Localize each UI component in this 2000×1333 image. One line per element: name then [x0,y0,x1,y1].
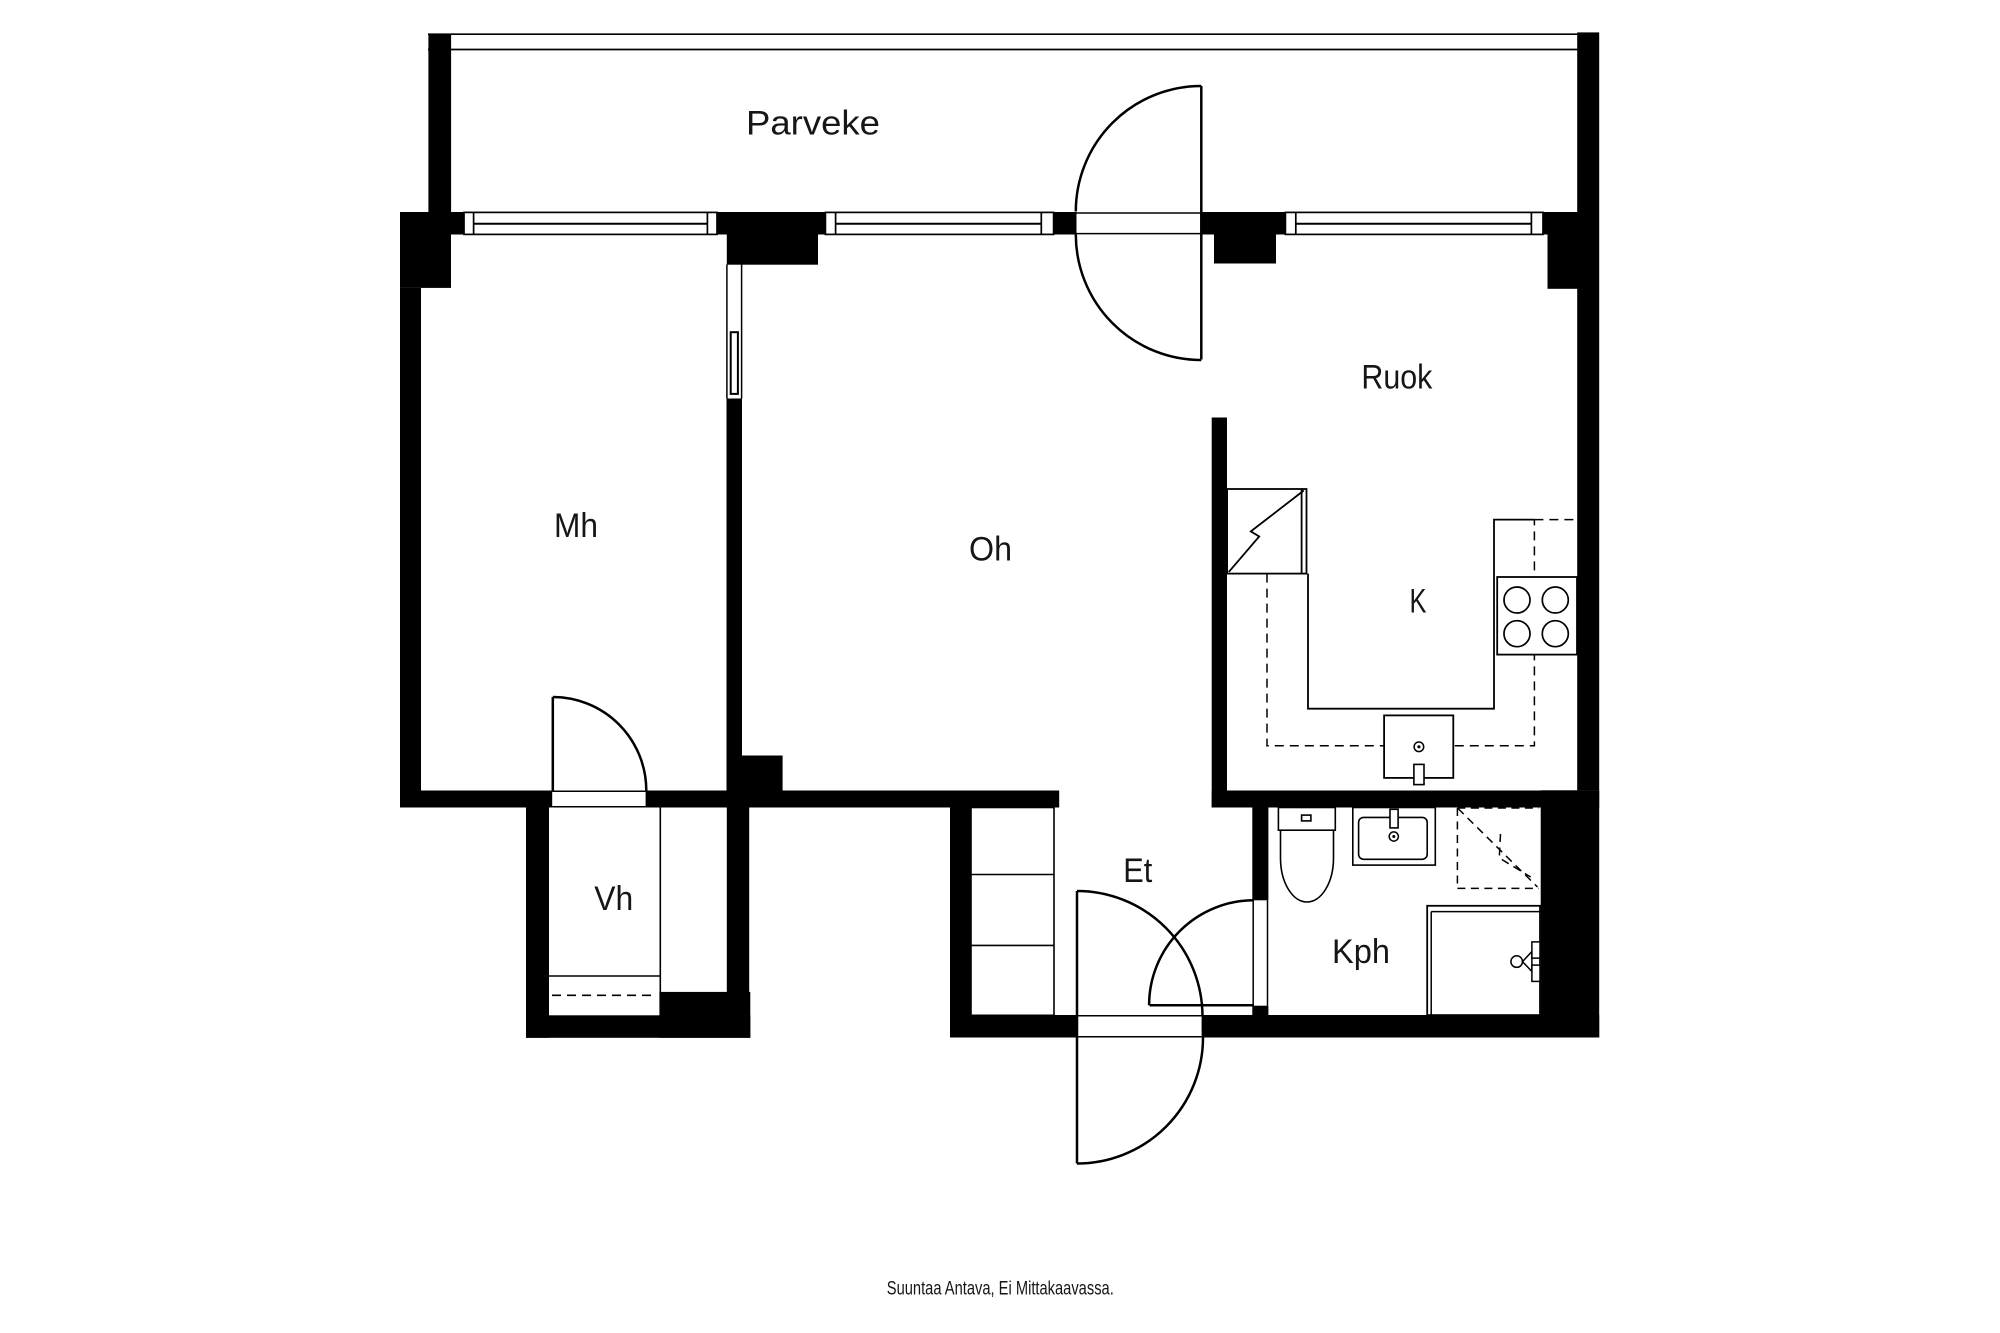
svg-text:Parveke: Parveke [746,105,880,143]
svg-text:Suuntaa Antava, Ei Mittakaavas: Suuntaa Antava, Ei Mittakaavassa. [887,1279,1114,1300]
svg-text:Oh: Oh [969,531,1012,569]
svg-text:Vh: Vh [594,880,633,918]
svg-text:Kph: Kph [1332,933,1390,971]
svg-text:K: K [1410,582,1427,620]
svg-text:Mh: Mh [554,507,598,545]
svg-text:Et: Et [1123,852,1152,890]
svg-text:Ruok: Ruok [1361,359,1433,397]
